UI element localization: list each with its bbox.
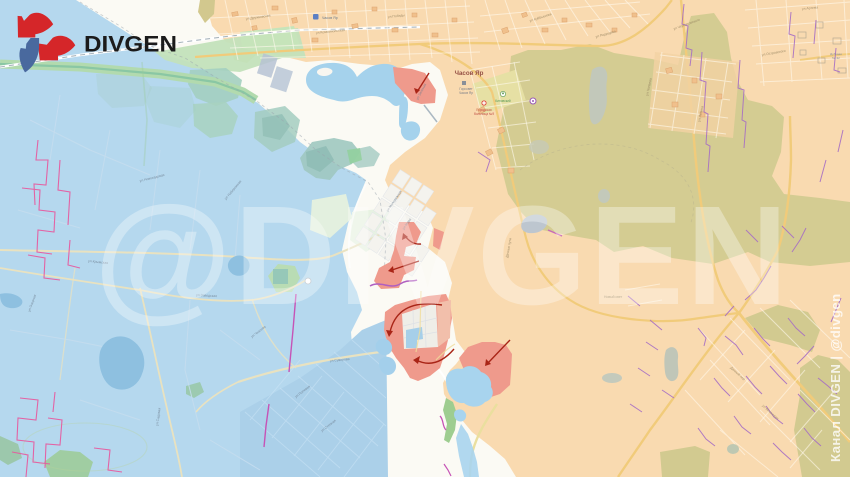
svg-text:больница №9: больница №9 xyxy=(474,112,494,116)
svg-text:Канал DIVGEN | @divgen: Канал DIVGEN | @divgen xyxy=(828,293,843,462)
svg-text:52-32: 52-32 xyxy=(832,56,840,60)
svg-text:Часов Яр: Часов Яр xyxy=(455,70,484,77)
svg-text:Часов Яр: Часов Яр xyxy=(322,16,338,20)
svg-text:Часов Яр: Часов Яр xyxy=(459,91,473,95)
svg-text:DIVGEN: DIVGEN xyxy=(84,32,177,57)
svg-text:@DIVGEN: @DIVGEN xyxy=(94,176,790,334)
svg-text:Киновский: Киновский xyxy=(495,99,511,103)
